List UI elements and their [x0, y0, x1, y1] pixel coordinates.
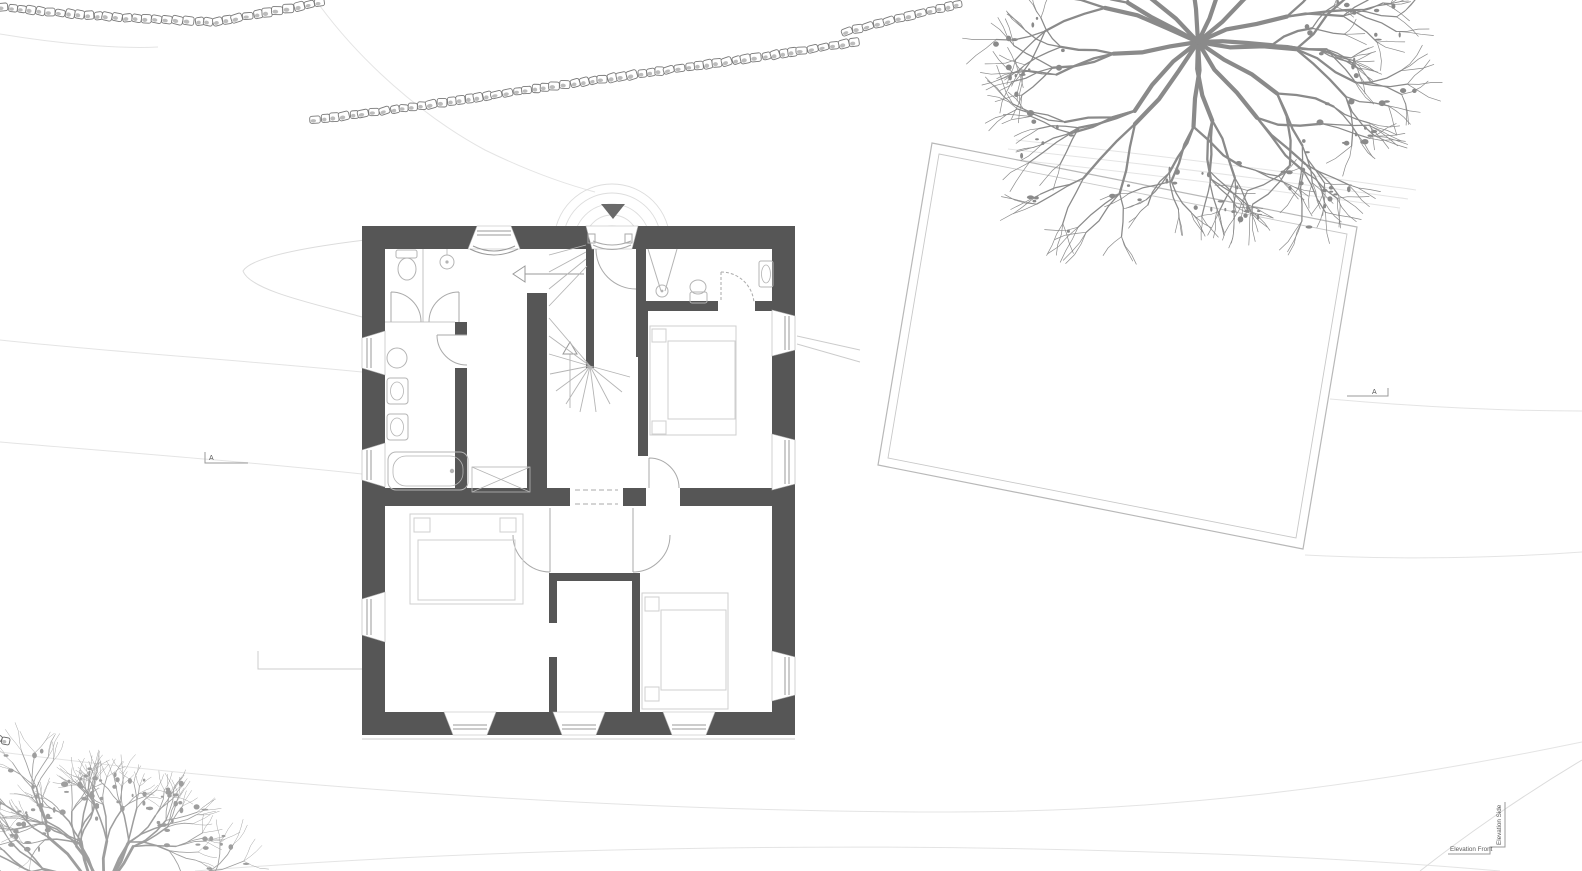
stone-wall-middle	[310, 37, 860, 123]
sanitary-fixtures	[385, 249, 773, 492]
terrace-outer-edge	[878, 143, 1357, 549]
contour	[0, 742, 1582, 812]
contour	[1305, 552, 1582, 558]
elevation-side-label: Elevation Side	[1496, 804, 1503, 845]
section-marker-line	[1347, 388, 1388, 396]
building-floor-plan	[362, 204, 795, 735]
washbasin-bowl	[391, 418, 404, 436]
bed-bottom-left	[410, 514, 523, 604]
entrance-swing-arc	[596, 249, 636, 289]
mattress	[418, 540, 515, 600]
stone-wall-top-left	[0, 0, 325, 27]
mattress	[668, 341, 735, 419]
corridor-direction-arrow-icon	[513, 266, 525, 282]
pillow	[414, 518, 430, 532]
contour	[195, 847, 1500, 871]
interior-doors	[391, 246, 754, 572]
elevation-front-label: Elevation Front	[1450, 846, 1493, 853]
site-detail-lines	[258, 336, 860, 739]
walls	[362, 226, 795, 735]
wc-door-right	[429, 292, 459, 322]
pillow	[645, 687, 659, 701]
section-marker-label: A	[1372, 389, 1377, 396]
bed-top-right	[650, 326, 736, 435]
bedroom-tr-door	[649, 458, 679, 488]
bathtub-drain	[450, 469, 454, 473]
site-plan-canvas: A A Elevation Front Elevation Side	[0, 0, 1582, 871]
hall-door-right	[633, 508, 670, 572]
bathroom-door	[437, 335, 467, 365]
section-marker-label: A	[209, 455, 214, 462]
ensuite-door-arc	[721, 272, 754, 303]
hall-door-left	[513, 508, 550, 572]
stone-wall-top-right	[841, 0, 963, 36]
wall-sink-bowl	[762, 265, 771, 283]
bed-frame	[410, 514, 523, 604]
contour	[1330, 399, 1582, 411]
contour	[0, 340, 362, 372]
elevation-labels: Elevation Front Elevation Side	[1448, 802, 1505, 854]
pillow	[500, 518, 516, 532]
shower-drain	[445, 260, 448, 263]
washbasin-bowl	[391, 382, 404, 400]
section-marker-a-right: A	[1347, 388, 1388, 396]
terrace-step-line	[258, 651, 362, 669]
tree-small-bottom-left	[0, 723, 272, 871]
contour	[0, 34, 158, 47]
contour	[0, 442, 362, 474]
toilet-cistern	[396, 250, 417, 258]
boiler	[387, 348, 407, 368]
bed-bottom-right	[642, 593, 728, 709]
wc-door-left	[391, 292, 421, 322]
sight-line	[797, 336, 860, 350]
terrace-outline	[878, 143, 1357, 549]
corner-shower-dot	[661, 290, 664, 293]
pillow	[652, 329, 666, 342]
windows	[362, 226, 795, 735]
sight-line	[797, 344, 860, 362]
mattress	[661, 610, 726, 690]
toilet	[398, 258, 416, 280]
passage-dashed-lines	[575, 490, 618, 504]
pillow	[652, 421, 666, 434]
pillow	[645, 597, 659, 611]
